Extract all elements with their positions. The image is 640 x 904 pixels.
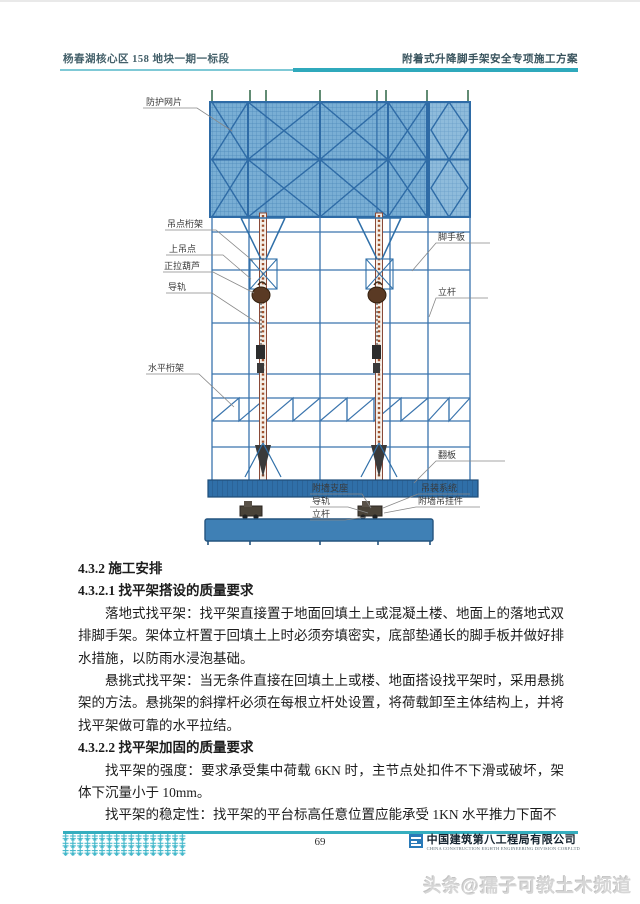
label-upper-lift-point: 上吊点 xyxy=(169,244,196,254)
label-scaffold-board: 脚手板 xyxy=(438,231,465,242)
label-lift-point-truss: 吊点桁架 xyxy=(167,218,203,229)
scaffold-diagram: 防护网片 吊点桁架 上吊点 正拉葫芦 导轨 水平桁架 脚手板 立杆 翻板 附墙支… xyxy=(0,87,640,559)
label-vertical-pole-2: 立杆 xyxy=(312,508,330,519)
paragraph-cantilever-leveling-frame: 悬挑式找平架：当无条件直接在回填土上或楼、地面搭设找平架时，采用悬挑架的方法。悬… xyxy=(78,670,564,737)
document-page: 杨春湖核心区 158 地块一期一标段 附着式升降脚手架安全专项施工方案 xyxy=(0,0,640,904)
header-divider xyxy=(60,68,578,72)
protective-mesh-panel xyxy=(210,102,470,217)
guide-rails xyxy=(260,213,383,480)
label-guide-rail-2: 导轨 xyxy=(312,495,330,506)
label-wall-hanger: 附墙吊挂件 xyxy=(418,495,463,506)
section-heading-4322: 4.3.2.2 找平架加固的质量要求 xyxy=(78,737,564,759)
label-horizontal-truss: 水平桁架 xyxy=(148,362,184,373)
scaffold-frame xyxy=(212,217,470,480)
watermark-text: 头条@孺子可教土木频道 xyxy=(423,872,632,898)
wall-attachment-right xyxy=(358,501,382,520)
label-wall-support: 附墙支座 xyxy=(312,482,348,493)
label-vertical-pole: 立杆 xyxy=(438,286,456,297)
label-flip-board: 翻板 xyxy=(438,449,456,460)
section-heading-432: 4.3.2 施工安排 xyxy=(78,558,564,580)
label-protective-mesh: 防护网片 xyxy=(146,96,182,107)
label-hoist: 正拉葫芦 xyxy=(164,260,200,271)
section-heading-4321: 4.3.2.1 找平架搭设的质量要求 xyxy=(78,580,564,602)
horizontal-truss xyxy=(212,398,470,421)
paragraph-ground-leveling-frame: 落地式找平架：找平架直接置于地面回填土上或混凝土楼、地面上的落地式双排脚手架。架… xyxy=(78,603,564,670)
body-text: 4.3.2 施工安排 4.3.2.1 找平架搭设的质量要求 落地式找平架：找平架… xyxy=(78,558,564,827)
label-hoisting-system: 吊装系统 xyxy=(421,482,457,493)
header-right-title: 附着式升降脚手架安全专项施工方案 xyxy=(402,51,578,66)
bottom-beam-assembly xyxy=(205,501,433,545)
paragraph-frame-strength: 找平架的强度：要求承受集中荷载 6KN 时，主节点处扣件不下滑或破坏，架体下沉量… xyxy=(78,760,564,805)
lower-rail-shoes xyxy=(245,443,397,477)
label-guide-rail: 导轨 xyxy=(168,281,186,292)
wall-attachment-left xyxy=(240,501,262,520)
company-name-cn: 中国建筑第八工程局有限公司 xyxy=(427,834,580,846)
header-left-title: 杨春湖核心区 158 地块一期一标段 xyxy=(63,51,230,66)
paragraph-frame-stability: 找平架的稳定性：找平架的平台标高任意位置应能承受 1KN 水平推力下面不 xyxy=(78,804,564,826)
company-logo-block: 中国建筑第八工程局有限公司 CHINA CONSTRUCTION EIGHTH … xyxy=(409,834,580,852)
company-name-en: CHINA CONSTRUCTION EIGHTH ENGINEERING DI… xyxy=(427,846,580,852)
cscec-logo-icon xyxy=(409,834,423,848)
